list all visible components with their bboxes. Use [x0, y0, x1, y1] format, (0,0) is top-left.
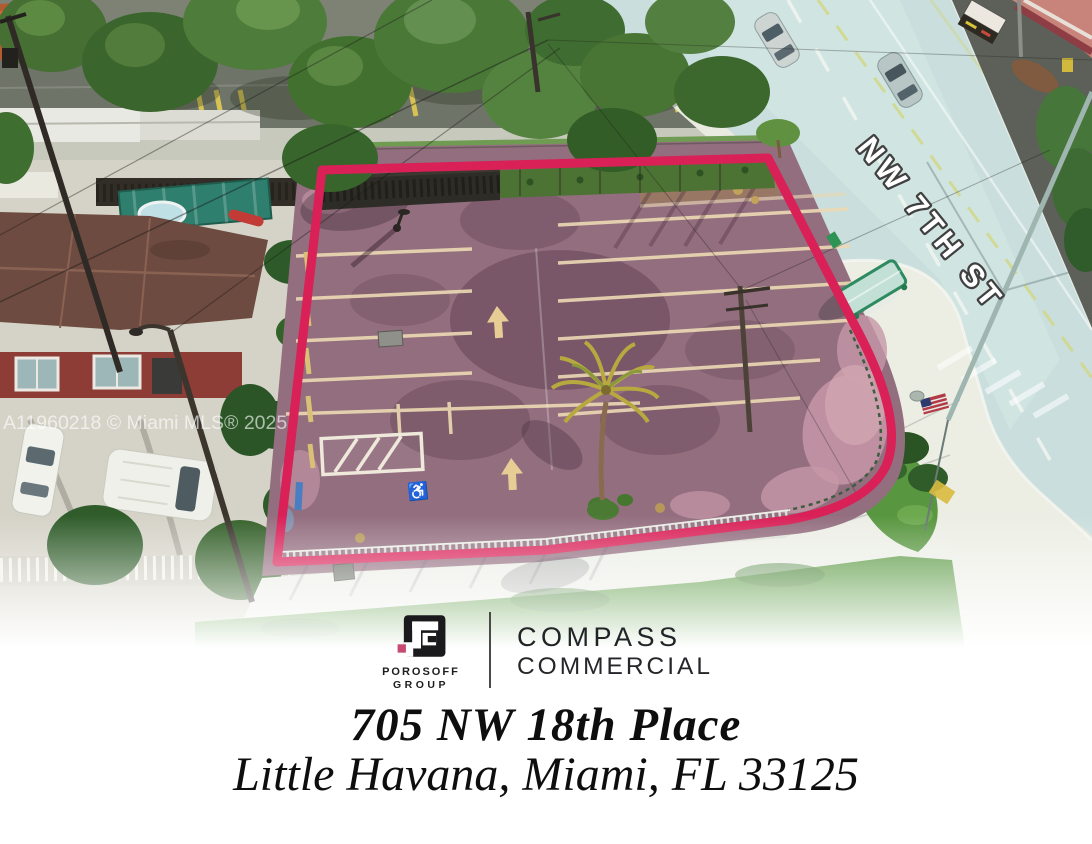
porosoff-logo-mark — [388, 610, 454, 662]
listing-flyer: ♿ — [0, 0, 1092, 844]
property-address: 705 NW 18th Place Little Havana, Miami, … — [0, 701, 1092, 801]
manhole — [910, 391, 924, 401]
porosoff-group: GROUP — [393, 679, 449, 691]
compass-commercial-wordmark: COMMERCIAL — [517, 653, 713, 681]
branding-section: POROSOFF GROUP COMPASS COMMERCIAL 705 NW… — [0, 610, 1092, 801]
porosoff-name: POROSOFF — [382, 666, 460, 678]
porosoff-accent-square — [398, 644, 406, 652]
handicap-stall — [321, 433, 423, 474]
aerial-photo: ♿ — [0, 0, 1092, 648]
address-line2: Little Havana, Miami, FL 33125 — [0, 750, 1092, 800]
blue-paint — [295, 482, 303, 510]
logo-divider — [489, 612, 491, 688]
address-line1: 705 NW 18th Place — [0, 701, 1092, 750]
porosoff-logo: POROSOFF GROUP — [379, 610, 463, 691]
electrical-cabinet — [378, 330, 403, 347]
newspaper-box — [1062, 58, 1073, 72]
handicap-symbol: ♿ — [406, 480, 429, 502]
compass-wordmark: COMPASS — [517, 623, 713, 653]
compass-logo: COMPASS COMMERCIAL — [517, 610, 713, 681]
red-building — [0, 352, 242, 398]
mls-watermark: A11960218 © Miami MLS® 2025 — [3, 412, 287, 434]
